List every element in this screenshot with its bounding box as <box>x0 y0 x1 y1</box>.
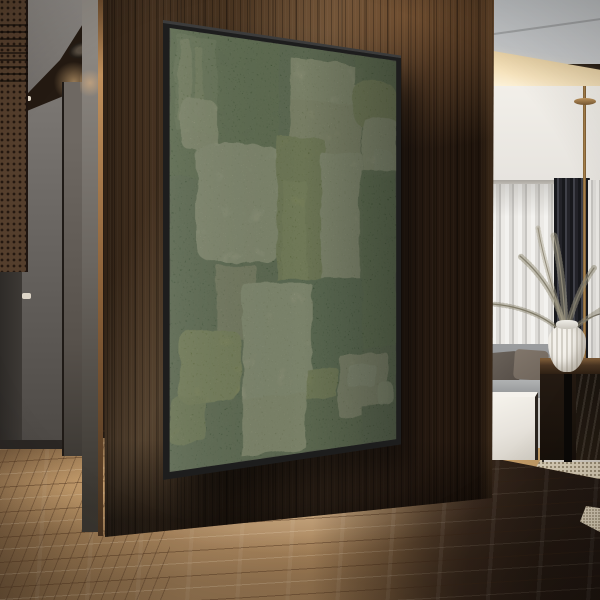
dark-glass-panel <box>576 374 600 460</box>
panel-slats <box>0 24 28 86</box>
baseboard <box>0 440 66 449</box>
corner-warm-glow <box>80 66 100 100</box>
floor-lamp-shade <box>574 98 596 105</box>
interior-photo <box>0 0 600 600</box>
vase-lip <box>556 320 578 329</box>
console-table-leg <box>564 374 572 462</box>
doorway-recess <box>0 265 22 448</box>
wall-light <box>22 293 31 299</box>
painting-canvas <box>170 28 397 472</box>
door-panel <box>62 82 82 456</box>
abstract-painting <box>163 20 401 480</box>
bronze-trim <box>98 0 103 536</box>
living-room <box>478 0 600 600</box>
